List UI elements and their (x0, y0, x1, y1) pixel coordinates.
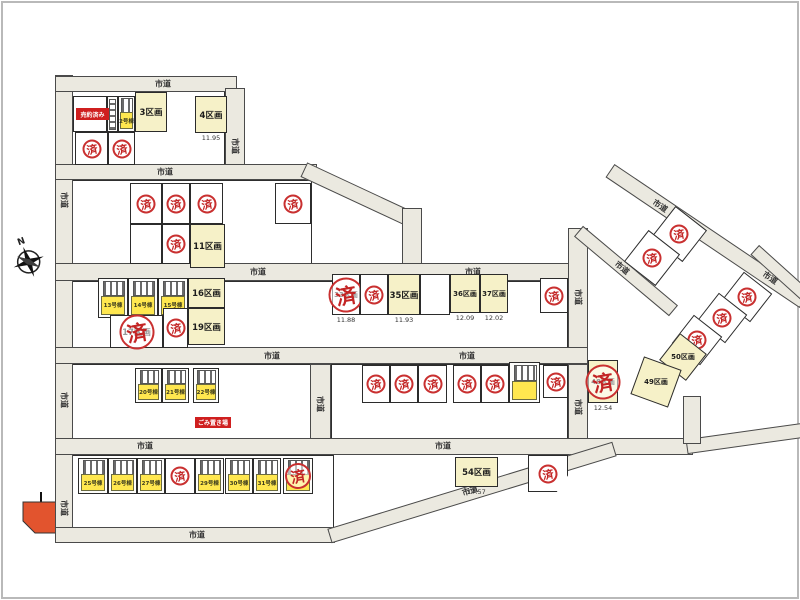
lot: 済 (275, 183, 311, 224)
parking-plan (113, 460, 134, 474)
house-footprint: 31号棟 (256, 474, 278, 491)
sold-stamp: 済 (456, 373, 478, 395)
sold-stamp: 済 (583, 361, 624, 402)
sold-stamp: 済 (641, 247, 663, 269)
garbage-note-label: ごみ置き場 (195, 417, 231, 428)
lot-label: 11区画 (193, 240, 222, 252)
parking-plan (121, 98, 133, 112)
plat-map: N 市道市道市道市道市道市道市道市道市道市道市道市道市道市道市道市道市道市道市道… (0, 0, 800, 600)
sold-stamp: 済 (736, 286, 758, 308)
lot-area-number: 12.54 (594, 404, 613, 412)
lot: 3区画 (135, 92, 167, 132)
parking-plan (163, 281, 185, 297)
lot-label: 35区画 (390, 289, 419, 301)
lot-label: 4区画 (200, 109, 223, 121)
road-label: 市道 (573, 399, 584, 415)
house-number-label: 25号棟 (84, 479, 103, 487)
house-footprint: 20号棟 (138, 384, 159, 400)
road-label: 市道 (573, 289, 584, 305)
lot-area-number: 11.95 (202, 134, 221, 142)
block-outline (72, 364, 311, 439)
lot: 済 (75, 132, 108, 165)
sold-stamp: 済 (711, 307, 733, 329)
road (55, 75, 73, 532)
lot: 済 (540, 278, 568, 313)
road-label: 市道 (315, 396, 326, 412)
house-number-label: 30号棟 (230, 479, 249, 487)
lot: 26号棟 (108, 458, 137, 494)
lot: 25号棟 (78, 458, 108, 494)
lot-area-number: 12.02 (485, 314, 504, 322)
road-label: 市道 (250, 267, 266, 278)
lot-label: 36区画 (453, 289, 477, 299)
lot: 済 (543, 365, 568, 398)
house-number-label: 21号棟 (166, 388, 185, 396)
lot: 21号棟 (162, 368, 189, 403)
parking-plan (167, 370, 187, 384)
lot: 2号棟 (118, 96, 135, 132)
road (55, 76, 237, 92)
parking-plan (514, 365, 537, 381)
lot: 16区画 (188, 278, 225, 308)
house-footprint: 14号棟 (131, 296, 155, 315)
house-number-label: 27号棟 (142, 479, 161, 487)
sold-stamp: 済 (169, 465, 191, 487)
lot: 済 (165, 458, 195, 494)
road-label: 市道 (459, 351, 475, 362)
sold-stamp: 済 (484, 373, 506, 395)
road (402, 208, 422, 270)
road-label: 市道 (59, 392, 70, 408)
sold-stamp: 済 (135, 192, 157, 214)
house-number-label: 13号棟 (104, 301, 123, 309)
house-number-label: 26号棟 (113, 479, 132, 487)
house-footprint (512, 381, 536, 400)
sold-stamp: 済 (116, 311, 157, 352)
lot: 13号棟 (98, 278, 128, 318)
parking-plan (133, 281, 155, 297)
sold-stamp: 済 (80, 137, 102, 159)
house-footprint: 2号棟 (120, 112, 133, 129)
lot: 19区画 (188, 308, 225, 345)
lot: 済 (163, 308, 188, 348)
sold-stamp: 済 (282, 192, 304, 214)
road-label: 市道 (155, 79, 171, 90)
lot: 31号棟 (253, 458, 281, 494)
lot: 済 (360, 274, 388, 315)
lot: 済 (528, 455, 568, 492)
sold-stamp: 済 (165, 192, 187, 214)
house-footprint: 21号棟 (165, 384, 186, 400)
sold-stamp: 済 (544, 370, 566, 392)
lot-label: 37区画 (482, 289, 506, 299)
road-label: 市道 (59, 192, 70, 208)
lot: 54区画 (455, 457, 498, 487)
sold-stamp: 済 (365, 373, 387, 395)
lot: 済 (162, 224, 190, 264)
lot: 22号棟 (193, 368, 219, 403)
road-label: 市道 (157, 167, 173, 178)
sold-stamp: 済 (363, 283, 385, 305)
lot: 済 (190, 183, 223, 224)
house-footprint: 13号棟 (101, 296, 125, 315)
lot-label: 54区画 (462, 466, 491, 478)
sold-note-label: 売約済み (76, 108, 109, 120)
lot (420, 274, 450, 315)
road-label: 市道 (264, 351, 280, 362)
parking-plan (258, 460, 278, 474)
sold-stamp: 済 (110, 137, 132, 159)
sold-stamp: 済 (537, 462, 559, 484)
lot: 36区画 (450, 274, 480, 313)
road (686, 422, 800, 453)
road (225, 88, 245, 168)
lot: 済 (162, 183, 190, 224)
lot: 30号棟 (225, 458, 253, 494)
house-number-label: 22号棟 (197, 388, 216, 396)
lot-label: 50区画 (671, 352, 695, 362)
lot-area-number: 17.57 (467, 488, 486, 496)
lot: 済 (481, 365, 509, 403)
lot: 済 (453, 365, 481, 403)
house-number-label: 29号棟 (200, 479, 219, 487)
lot: 14号棟 (128, 278, 158, 318)
lot: 33区画済 (332, 274, 360, 315)
compass-n-label: N (16, 236, 27, 248)
lot: 済 (418, 365, 447, 403)
lot: 11区画 (190, 224, 225, 268)
lot: 済 (362, 365, 390, 403)
road-label: 市道 (435, 441, 451, 452)
house-footprint: 22号棟 (196, 384, 216, 400)
house-footprint: 30号棟 (228, 474, 250, 491)
lot-area-number: 12.09 (456, 314, 475, 322)
parking-plan (230, 460, 250, 474)
lot-label: 3区画 (140, 106, 163, 118)
road-label: 市道 (59, 500, 70, 516)
parking-plan (83, 460, 105, 474)
house-footprint: 25号棟 (81, 474, 105, 491)
sold-stamp: 済 (165, 233, 187, 255)
road-label: 市道 (189, 530, 205, 541)
lot: 20号棟 (135, 368, 162, 403)
lot-label: 49区画 (644, 377, 668, 387)
road (55, 164, 317, 180)
road-label: 市道 (230, 138, 241, 154)
lot: 27号棟 (137, 458, 165, 494)
sold-stamp: 済 (543, 284, 565, 306)
parking-plan (109, 99, 116, 130)
lot: 17区画済 (110, 315, 163, 348)
house-number-label: 14号棟 (134, 301, 153, 309)
lot: 済 (130, 183, 162, 224)
lot-area-number: 11.93 (395, 316, 414, 324)
parking-plan (200, 460, 221, 474)
lot-area-number: 11.88 (337, 316, 356, 324)
parking-plan (142, 460, 162, 474)
sold-stamp: 済 (393, 373, 415, 395)
house-footprint: 26号棟 (111, 474, 134, 491)
sold-stamp: 済 (668, 223, 690, 245)
road-label: 市道 (137, 441, 153, 452)
parking-plan (140, 370, 160, 384)
sold-stamp: 済 (164, 317, 186, 339)
house-number-label: 31号棟 (258, 479, 277, 487)
lot: 29号棟 (195, 458, 224, 494)
lot-label: 19区画 (192, 321, 221, 333)
lot (130, 224, 162, 264)
compass-icon: N (6, 232, 50, 282)
sold-stamp: 済 (195, 192, 217, 214)
lot: 37区画 (480, 274, 508, 313)
lot (509, 362, 540, 403)
road (683, 396, 701, 444)
sold-stamp: 済 (421, 373, 443, 395)
lot: 35区画 (388, 274, 420, 315)
lot: 済 (283, 458, 313, 494)
lot: 済 (390, 365, 418, 403)
lot-label: 16区画 (192, 287, 221, 299)
lot: 済 (108, 132, 135, 165)
house-number-label: 2号棟 (119, 117, 134, 125)
parking-plan (197, 370, 216, 384)
house-footprint: 27号棟 (140, 474, 162, 491)
house-footprint: 29号棟 (198, 474, 221, 491)
parking-plan (103, 281, 125, 297)
lot: 48区画済 (588, 360, 618, 403)
house-number-label: 20号棟 (139, 388, 158, 396)
lot: 4区画 (195, 96, 227, 133)
